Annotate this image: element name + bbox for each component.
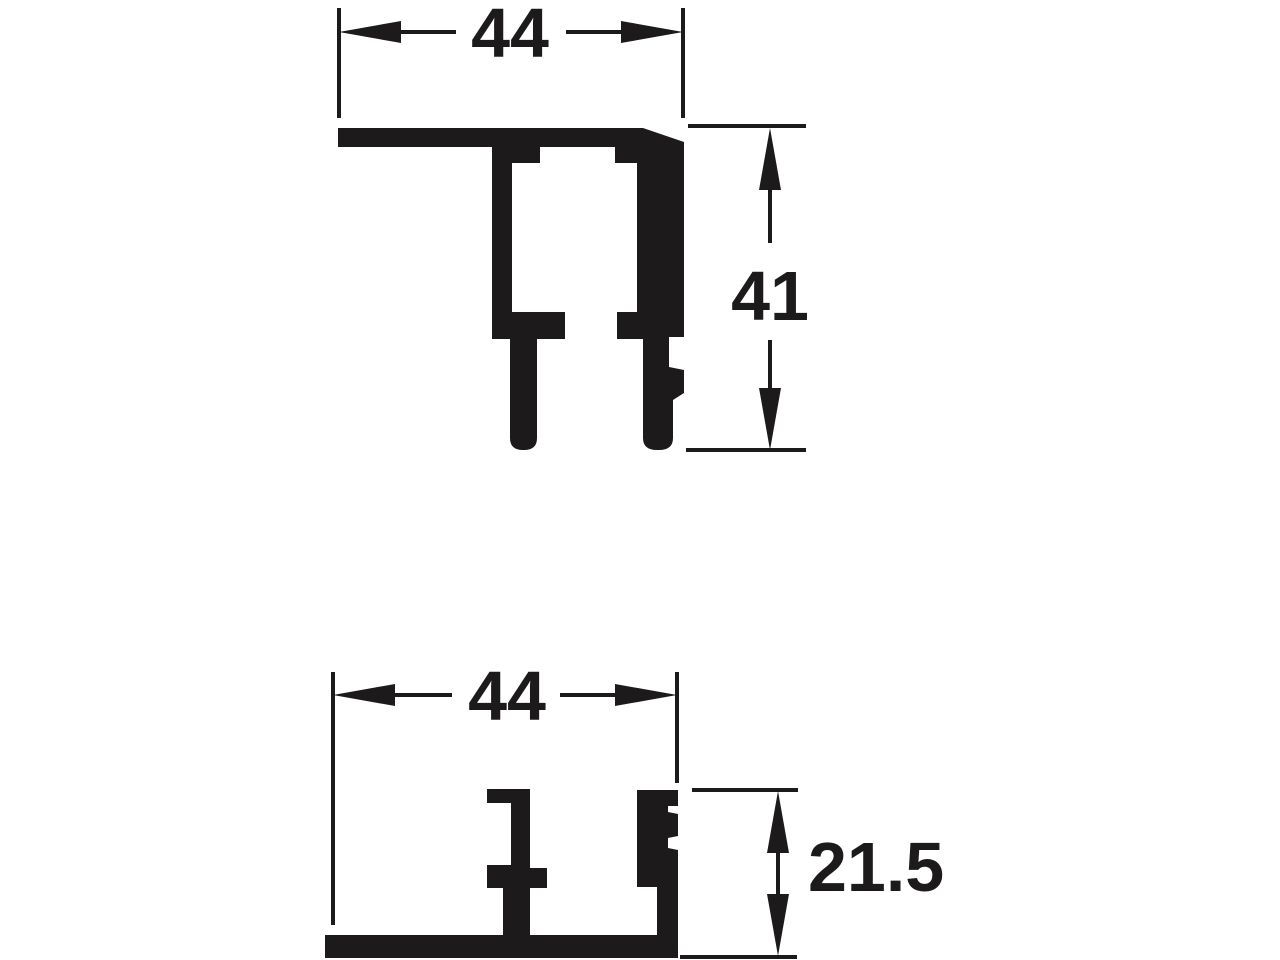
lower-track-profile-shape bbox=[325, 789, 678, 958]
arrowhead-up-icon bbox=[767, 791, 789, 853]
upper-height-dimension: 41 bbox=[686, 126, 809, 450]
arrowhead-right-icon bbox=[615, 684, 677, 706]
arrowhead-left-icon bbox=[339, 21, 401, 43]
arrowhead-up-icon bbox=[759, 128, 781, 190]
dimension-value: 44 bbox=[471, 0, 549, 72]
technical-drawing: 44 41 44 bbox=[0, 0, 1280, 960]
upper-width-dimension: 44 bbox=[339, 0, 683, 118]
dimension-value: 44 bbox=[468, 657, 546, 735]
arrowhead-down-icon bbox=[759, 388, 781, 450]
dimension-value: 21.5 bbox=[808, 828, 944, 906]
arrowhead-left-icon bbox=[333, 684, 395, 706]
arrowhead-down-icon bbox=[767, 894, 789, 956]
lower-height-dimension: 21.5 bbox=[680, 790, 944, 957]
dimension-value: 41 bbox=[731, 257, 809, 335]
technical-drawing-canvas: 44 41 44 bbox=[0, 0, 1280, 960]
arrowhead-right-icon bbox=[621, 21, 683, 43]
upper-track-profile-shape bbox=[338, 128, 684, 450]
